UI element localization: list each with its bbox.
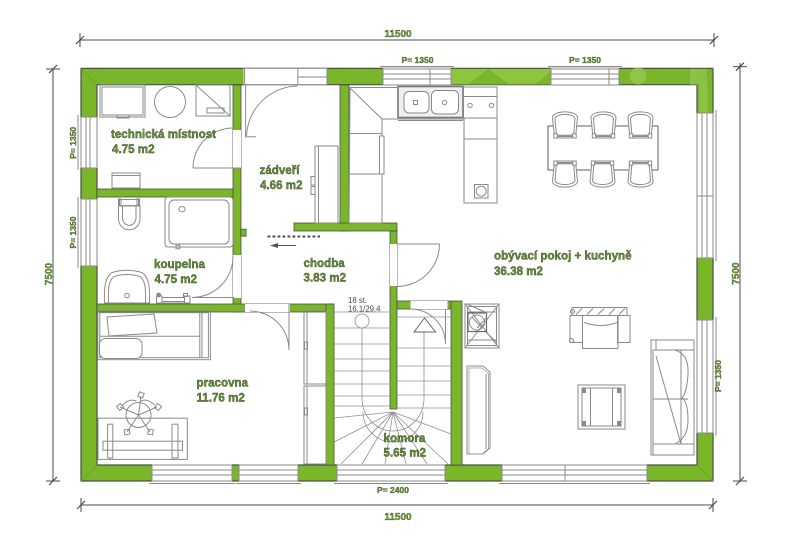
- svg-text:komora: komora: [384, 432, 426, 445]
- svg-text:11500: 11500: [384, 29, 412, 40]
- svg-text:16.1/29.4: 16.1/29.4: [348, 305, 381, 314]
- svg-text:zádveří: zádveří: [260, 164, 301, 177]
- svg-text:11500: 11500: [384, 512, 412, 523]
- svg-text:pracovna: pracovna: [197, 377, 249, 390]
- svg-text:5.65 m2: 5.65 m2: [384, 447, 427, 460]
- svg-text:4.75 m2: 4.75 m2: [155, 273, 198, 286]
- svg-text:P= 1350: P= 1350: [68, 127, 78, 159]
- svg-text:7500: 7500: [731, 262, 742, 285]
- svg-text:obývací pokoj + kuchyně: obývací pokoj + kuchyně: [494, 250, 632, 263]
- svg-text:P= 2400: P= 2400: [377, 485, 409, 495]
- svg-text:chodba: chodba: [304, 257, 346, 270]
- svg-text:P= 1350: P= 1350: [68, 216, 78, 248]
- svg-text:36.38 m2: 36.38 m2: [494, 265, 543, 278]
- svg-text:koupelna: koupelna: [154, 258, 205, 271]
- svg-text:11.76 m2: 11.76 m2: [197, 392, 245, 405]
- svg-text:4.75 m2: 4.75 m2: [112, 143, 155, 156]
- svg-text:7500: 7500: [44, 262, 55, 285]
- svg-text:P= 1350: P= 1350: [569, 55, 601, 65]
- svg-text:4.66 m2: 4.66 m2: [260, 179, 303, 192]
- svg-text:P= 1350: P= 1350: [713, 360, 723, 392]
- svg-text:P= 1350: P= 1350: [402, 55, 434, 65]
- svg-text:technická místnost: technická místnost: [111, 128, 216, 141]
- svg-text:3.83 m2: 3.83 m2: [304, 272, 347, 285]
